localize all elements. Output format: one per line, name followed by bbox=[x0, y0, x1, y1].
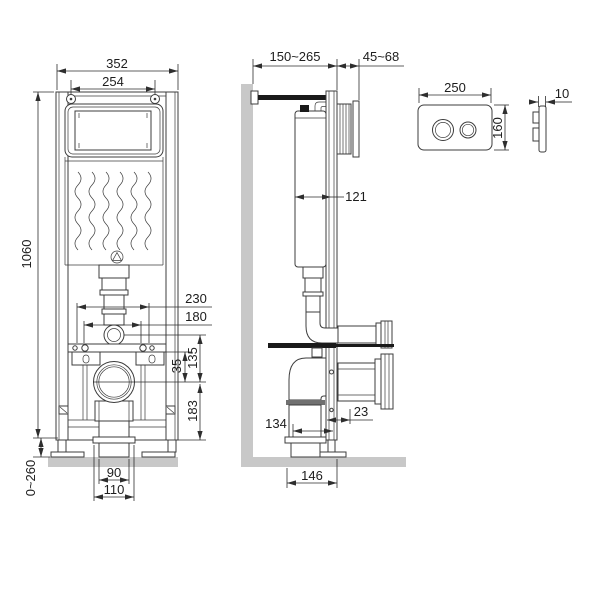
dim-outlet-base-label: 183 bbox=[185, 400, 200, 422]
flush-plate-sleeve bbox=[337, 101, 359, 157]
plate-clip-upper bbox=[533, 112, 539, 123]
flush-connector-pipe bbox=[338, 321, 392, 348]
flush-plate bbox=[418, 105, 492, 150]
dim-plate-width-label: 250 bbox=[444, 80, 466, 95]
waste-connector-pipe bbox=[338, 354, 393, 409]
dim-outlet-offset-label: 134 bbox=[265, 416, 287, 431]
dim-front-offset-label: 45~68 bbox=[363, 49, 400, 64]
floor-section-side bbox=[241, 457, 406, 467]
dim-base-depth-label: 146 bbox=[301, 468, 323, 483]
waste-elbow bbox=[285, 358, 326, 457]
cistern-corrugation-waves bbox=[75, 172, 151, 250]
dim-flush-outlet-label: 135 bbox=[185, 347, 200, 369]
pan-bracket-bar bbox=[268, 343, 336, 348]
rail-clip-right bbox=[166, 406, 175, 414]
flush-pipe bbox=[99, 265, 129, 325]
access-panel-inner bbox=[75, 111, 151, 150]
flush-plate-front-view: 250 160 bbox=[418, 80, 509, 150]
installation-diagram: 352 254 1060 0~260 230 180 35 135 183 90… bbox=[0, 0, 600, 600]
dim-bolt-spacing-label: 254 bbox=[102, 74, 124, 89]
technical-drawing-page: 352 254 1060 0~260 230 180 35 135 183 90… bbox=[0, 0, 600, 600]
outlet-pipe bbox=[93, 421, 135, 457]
fixing-bracket-right bbox=[136, 352, 164, 365]
dim-rail-outlet-label: 35 bbox=[169, 359, 184, 373]
inlet-valve-cap bbox=[300, 105, 309, 112]
dim-plate-thickness-label: 10 bbox=[555, 86, 569, 101]
dim-fixing-inner-label: 180 bbox=[185, 309, 207, 324]
frame-rail-profile bbox=[326, 91, 337, 440]
side-foot-plate bbox=[320, 452, 346, 457]
wall-anchor bbox=[251, 91, 258, 104]
dim-plate-height-label: 160 bbox=[490, 117, 505, 139]
flush-pipe-clamp bbox=[104, 325, 124, 345]
bracket-tab bbox=[312, 348, 322, 357]
dim-outlet-bore-label: 90 bbox=[107, 465, 121, 480]
dim-cistern-depth-label: 121 bbox=[345, 189, 367, 204]
dim-frame-flange-label: 23 bbox=[354, 404, 368, 419]
outlet-socket bbox=[95, 401, 133, 421]
flush-plate-profile bbox=[539, 106, 546, 152]
dim-outlet-diameter-label: 110 bbox=[104, 482, 125, 497]
dim-overall-width-label: 352 bbox=[106, 56, 128, 71]
triangle-logo-icon bbox=[111, 251, 123, 263]
cistern-body bbox=[65, 157, 163, 265]
wall-section bbox=[241, 84, 253, 457]
dim-wall-offset-label: 150~265 bbox=[270, 49, 321, 64]
rail-hole-lower bbox=[330, 408, 333, 411]
rail-clip-left bbox=[59, 406, 68, 414]
plate-clip-lower bbox=[533, 128, 539, 141]
dim-frame-height-label: 1060 bbox=[19, 240, 34, 269]
side-view bbox=[241, 84, 406, 467]
dim-fixing-outer-label: 230 bbox=[185, 291, 207, 306]
support-rod bbox=[258, 95, 326, 100]
flush-plate-side-view: 10 bbox=[529, 86, 572, 152]
front-view bbox=[48, 92, 178, 467]
side-foot-adjuster bbox=[328, 440, 335, 452]
dim-foot-adjust-label: 0~260 bbox=[23, 460, 38, 497]
frame-right-rail bbox=[166, 92, 178, 440]
cistern-profile bbox=[295, 102, 326, 267]
rail-hole bbox=[330, 370, 334, 374]
